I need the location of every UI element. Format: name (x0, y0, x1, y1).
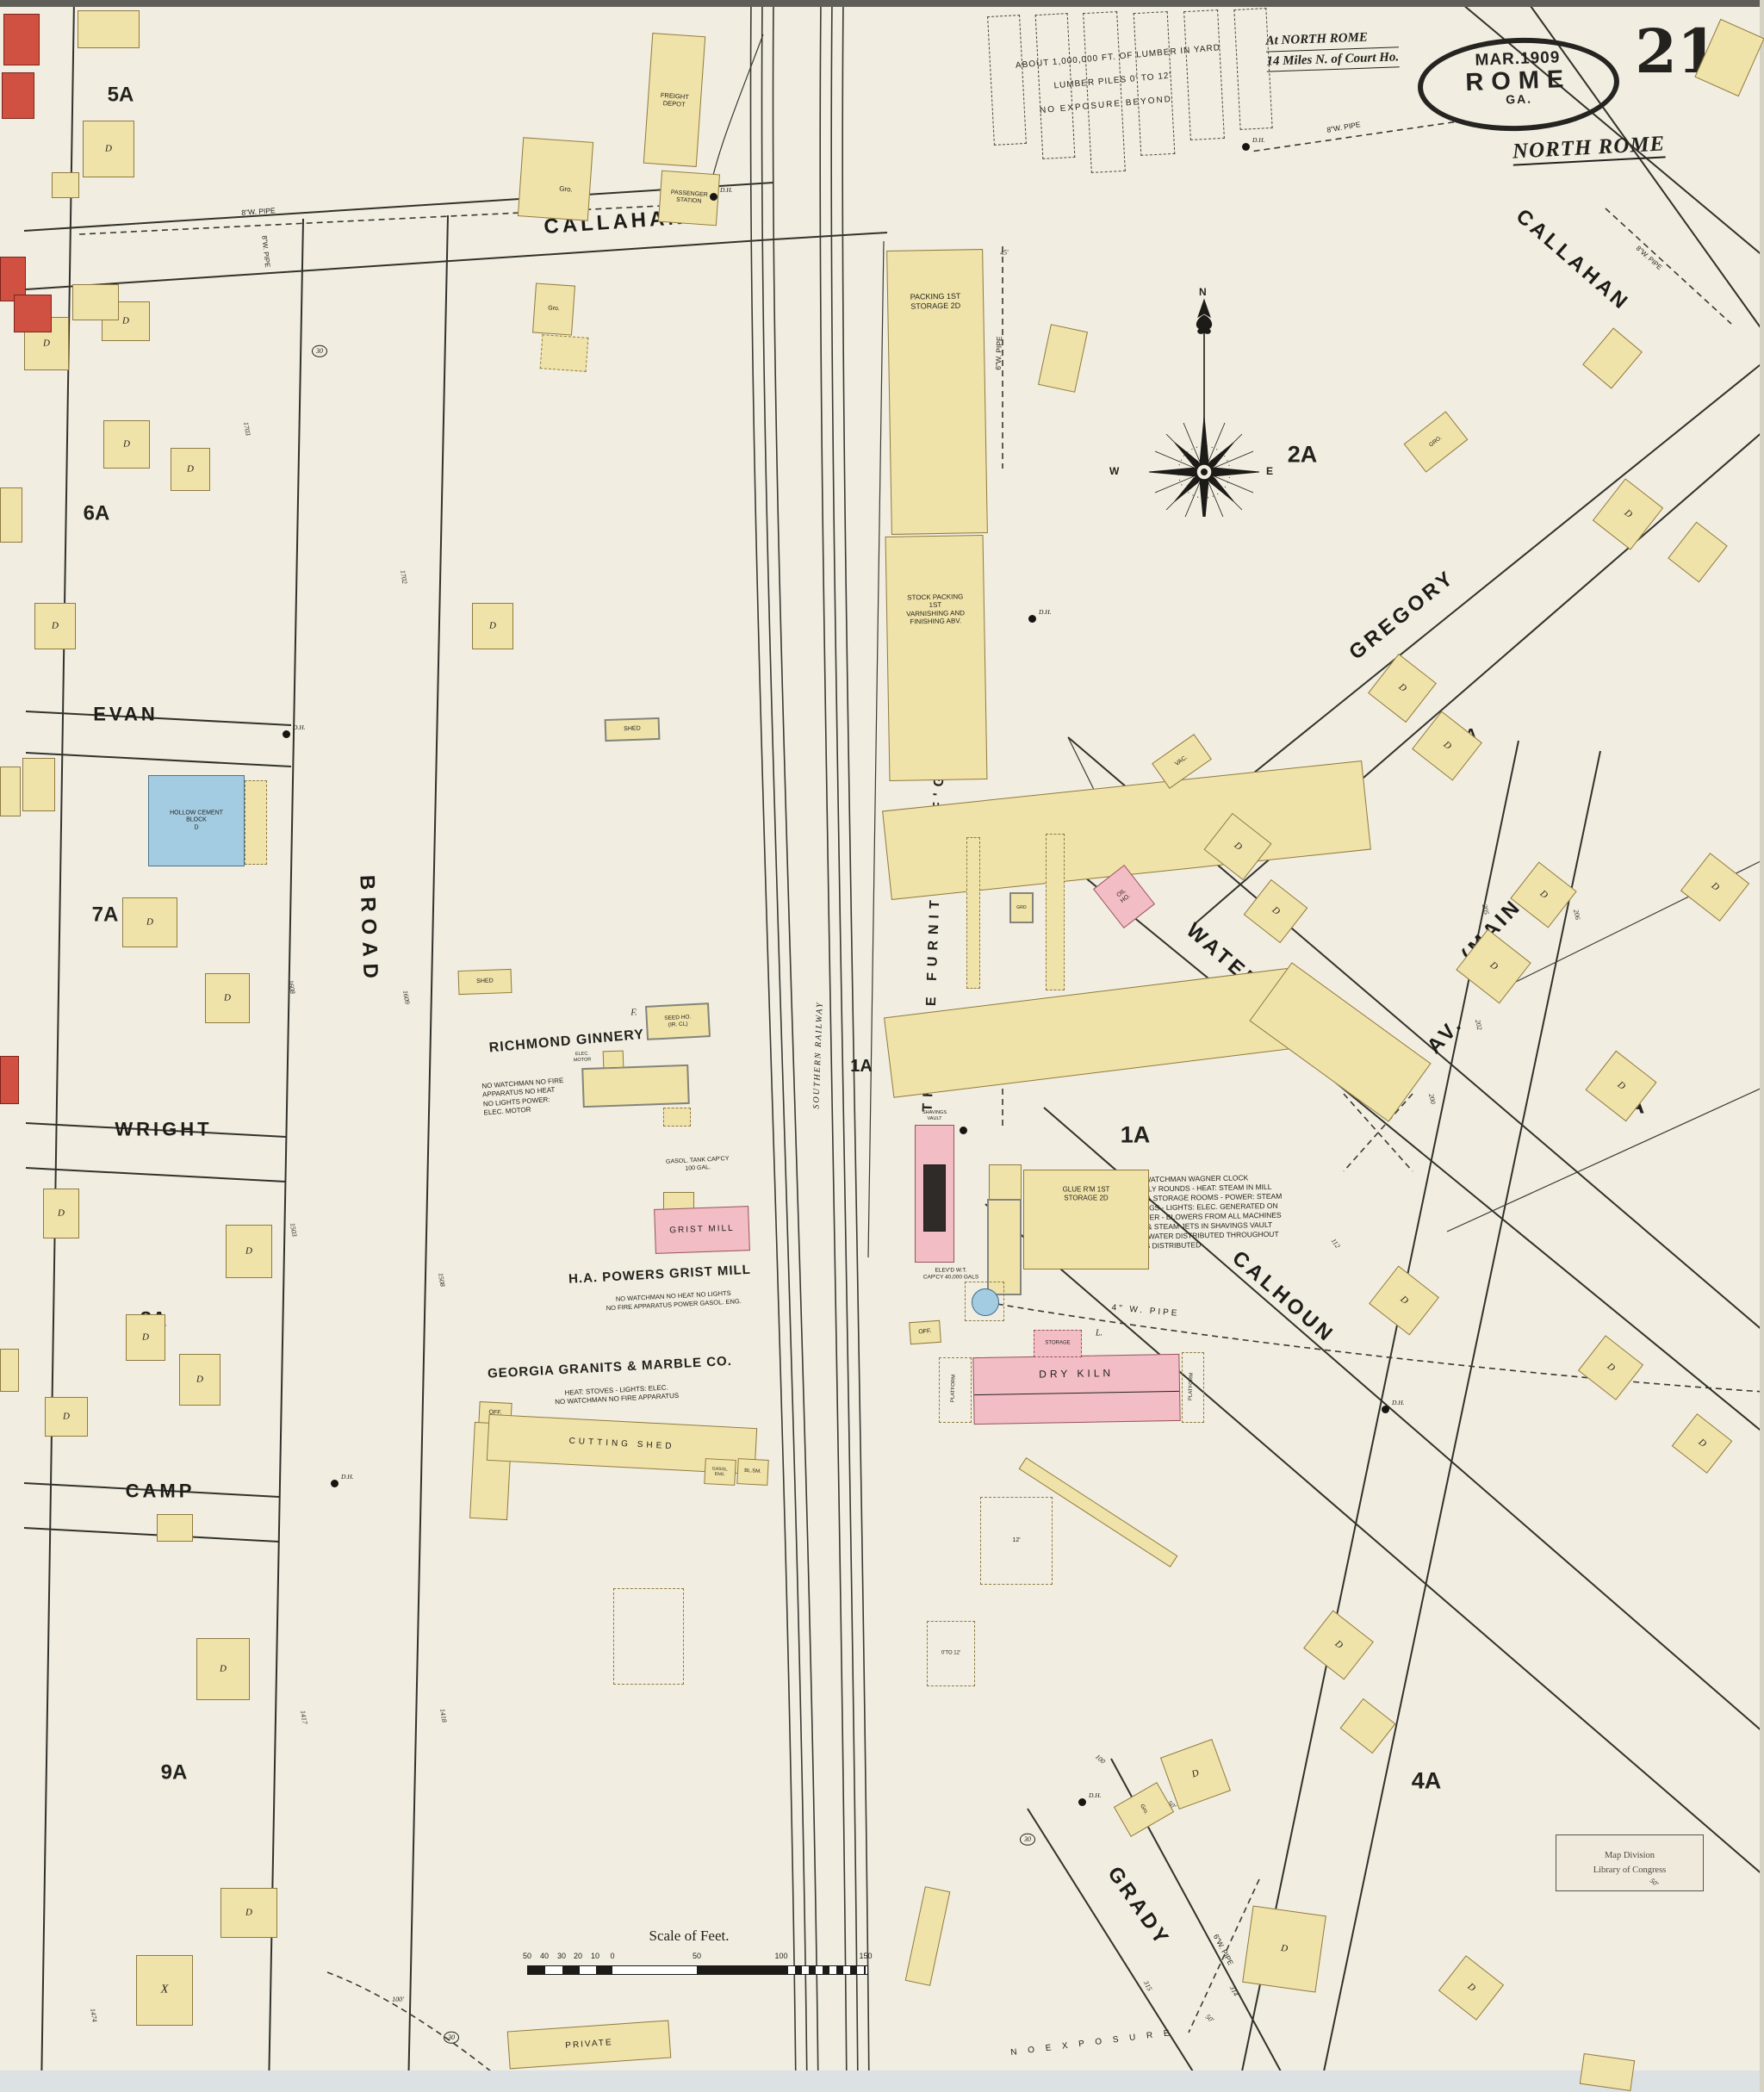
building (157, 1514, 193, 1542)
hydrant-label: D.H. (293, 723, 306, 731)
building-label: D (1709, 880, 1721, 893)
building-label: Gro. (1138, 1803, 1149, 1816)
hydrant-dot (331, 1480, 339, 1487)
annotation: L. (1096, 1328, 1102, 1339)
annotation: SHAVINGS VAULT (922, 1110, 947, 1122)
building-label: D (1332, 1638, 1345, 1651)
building-label: D (58, 1207, 65, 1219)
building (939, 1357, 972, 1423)
building-label: D (1396, 681, 1408, 694)
building (923, 1164, 946, 1232)
scale-tick: 20 (574, 1952, 582, 1962)
building-label: SHED (624, 725, 641, 733)
building-label: PRIVATE (565, 2038, 613, 2052)
hydrant-dot (1382, 1406, 1389, 1413)
building-label: D (123, 438, 130, 450)
building-label: D (1537, 888, 1550, 901)
building: D (126, 1314, 165, 1361)
building (0, 767, 21, 816)
lumber-pile (1233, 8, 1272, 130)
building-label: 0'TO 12' (941, 1650, 960, 1656)
building-label: GASOL. ENG. (711, 1467, 728, 1478)
building-label: STORAGE (1045, 1340, 1070, 1346)
library-stamp-line1: Map Division (1556, 1851, 1703, 1860)
compass-north-label: N (1199, 286, 1207, 298)
building-label: D (43, 338, 50, 349)
building: 0'TO 12' (927, 1621, 975, 1686)
building-label: D (224, 992, 231, 1003)
hydrant-label: D.H. (341, 1473, 354, 1481)
building: HOLLOW CEMENT BLOCK D (148, 775, 245, 866)
building: X (136, 1955, 193, 2026)
hydrant-label: D.H. (1089, 1791, 1102, 1799)
lumber-pile (987, 15, 1027, 146)
block-label: 4A (1412, 1766, 1442, 1796)
building-label: D (142, 1332, 149, 1343)
building-label: SEED HO. (IR. CL) (664, 1014, 692, 1028)
building: Gro. (532, 282, 575, 335)
building-label: Gro. (559, 184, 573, 194)
building-label: D (1232, 840, 1244, 853)
building: FREIGHT DEPOT (643, 33, 705, 167)
scale-tick: 50 (523, 1952, 531, 1962)
compass-east-label: E (1266, 465, 1273, 477)
hydrant-dot (1028, 615, 1036, 623)
annotation: NO WATCHMAN NO FIRE APPARATUS NO HEAT NO… (481, 1077, 566, 1118)
building: D (103, 420, 150, 469)
dimension-label: 200 (1426, 1093, 1438, 1105)
building-label: HOLLOW CEMENT BLOCK D (170, 810, 223, 831)
building: D (179, 1354, 220, 1406)
hydrant-dot (960, 1127, 967, 1134)
hydrant-dot (710, 193, 717, 201)
hydrant-label: D.H. (720, 186, 733, 194)
building-label: DRY KILN (1039, 1367, 1114, 1381)
building: D (45, 1397, 88, 1437)
building: D (1242, 1905, 1326, 1992)
building (0, 1056, 19, 1104)
annotation: ELEV'D W.T. CAP'CY 40,000 GALS (923, 1268, 978, 1282)
street-label: EVAN (93, 703, 158, 728)
scan-edge-right (1760, 0, 1764, 2092)
street-label: WRIGHT (115, 1118, 212, 1143)
building (603, 1051, 624, 1069)
building: GASOL. ENG. (704, 1458, 736, 1486)
building: D (34, 603, 76, 649)
building-label: D (1441, 739, 1453, 752)
building (22, 758, 55, 811)
building: D (220, 1888, 277, 1938)
building-label: PACKING 1ST STORAGE 2D (910, 292, 961, 312)
block-label: 1A (1121, 1120, 1151, 1150)
annotation: 6"W. PIPE (994, 336, 1004, 370)
building: OFF. (909, 1320, 941, 1344)
building-label: BL.SM. (744, 1468, 761, 1475)
building: BL.SM. (736, 1458, 769, 1486)
building (14, 295, 52, 332)
building-label: D (63, 1411, 70, 1422)
building (966, 837, 980, 989)
scale-tick: 0 (610, 1952, 614, 1962)
scale-bar-title: Scale of Feet. (603, 1927, 775, 1945)
building (2, 72, 34, 119)
building-label: D (52, 620, 59, 631)
building-label: OIL HO. (1115, 888, 1133, 906)
sanborn-map-sheet: N W E 21 MAR.1909 ROME GA. At NORTH ROME… (0, 0, 1764, 2092)
annotation: ELEC. MOTOR (574, 1052, 592, 1065)
building-label: SHED (476, 978, 494, 985)
building-label: 12' (1012, 1537, 1020, 1544)
building: D (171, 448, 210, 491)
building (1182, 1352, 1204, 1423)
compass-west-label: W (1109, 465, 1119, 477)
building: 12' (980, 1497, 1053, 1585)
library-stamp-line2: Library of Congress (1556, 1865, 1703, 1875)
scale-tick: 100 (774, 1952, 787, 1962)
building-label: STOCK PACKING 1ST VARNISHING AND FINISHI… (906, 593, 966, 627)
building-label: FREIGHT DEPOT (660, 91, 689, 109)
scale-bar (527, 1965, 868, 1975)
annotation: F. (630, 1008, 637, 1019)
compass-rose: N W E (1127, 293, 1282, 521)
building: D (196, 1638, 250, 1700)
building-label: GRO. (1428, 435, 1444, 449)
building-label: D (220, 1663, 227, 1674)
block-label: 1A (850, 1055, 873, 1077)
building-label: D (1190, 1767, 1201, 1780)
building-label: D (1622, 507, 1634, 520)
building-label: X (161, 1983, 169, 1998)
block-label: 5A (108, 81, 134, 108)
block-label: 9A (161, 1759, 188, 1785)
scale-tick: 10 (591, 1952, 599, 1962)
building: SHED (458, 969, 512, 995)
dimension-label: 206 (1571, 909, 1582, 921)
library-stamp: Map Division Library of Congress (1556, 1834, 1704, 1891)
building: GRO (1009, 892, 1034, 923)
water-tank (972, 1288, 999, 1316)
building: D (226, 1225, 272, 1278)
building: D (122, 897, 177, 947)
scale-tick: 40 (540, 1952, 549, 1962)
building-label: PASSENGER STATION (670, 189, 708, 207)
building: D (472, 603, 513, 649)
building: SHED (605, 717, 661, 742)
building-label: D (1488, 959, 1500, 972)
building-label: D (1605, 1361, 1617, 1374)
street-label: CAMP (126, 1480, 196, 1505)
building-label: VAC. (1174, 754, 1189, 768)
block-label: 6A (84, 500, 110, 526)
scale-tick: 150 (859, 1952, 872, 1962)
hydrant-label: D.H. (1252, 136, 1265, 144)
street-and-rail-lines (0, 0, 1764, 2092)
building: SEED HO. (IR. CL) (645, 1003, 711, 1040)
building (581, 1065, 690, 1108)
dimension-label: 205 (1480, 903, 1491, 916)
building (613, 1588, 684, 1685)
building-label: Gro. (548, 305, 560, 313)
block-label: 2A (1288, 439, 1318, 469)
annotation: GASOL. TANK CAP'CY 100 GAL. (666, 1155, 730, 1174)
building: DRY KILN (972, 1354, 1180, 1425)
dimension-label: 45' (1000, 248, 1009, 258)
building-label: GRO (1016, 905, 1026, 910)
building: D (43, 1189, 79, 1238)
building (0, 487, 22, 543)
street-label: BROAD (353, 874, 384, 985)
building: Gro. (518, 137, 593, 220)
building-label: D (122, 315, 129, 326)
building (663, 1108, 691, 1127)
building-label: D (1398, 1294, 1410, 1307)
hydrant-dot (283, 730, 290, 738)
hydrant-dot (1078, 1798, 1086, 1806)
building-label: D (489, 620, 496, 631)
building-label: GRIST MILL (669, 1224, 735, 1237)
dimension-label: 202 (1473, 1019, 1484, 1031)
building (1046, 834, 1065, 990)
scale-tick: 50 (693, 1952, 701, 1962)
building-label: GLUE R'M 1ST STORAGE 2D (1063, 1186, 1110, 1202)
building-label: D (1465, 1981, 1477, 1994)
building-label: D (1696, 1437, 1708, 1450)
scan-edge-top (0, 0, 1764, 7)
building-label: D (146, 916, 153, 928)
scale-tick: 30 (557, 1952, 566, 1962)
building (52, 172, 79, 198)
building (245, 780, 267, 865)
building (78, 10, 140, 48)
building-label: D (187, 463, 194, 475)
building (3, 14, 40, 65)
building-label: D (1615, 1079, 1627, 1092)
building-label: D (245, 1907, 252, 1918)
building-label: OFF. (918, 1328, 932, 1336)
building: D (205, 973, 250, 1023)
building (72, 284, 119, 320)
hydrant-label: D.H. (1392, 1399, 1405, 1406)
building: GLUE R'M 1ST STORAGE 2D (1023, 1170, 1149, 1269)
building (0, 1349, 19, 1392)
block-label: 7A (92, 901, 119, 928)
building-label: D (245, 1245, 252, 1257)
building-label: D (196, 1374, 203, 1385)
scan-edge-bottom (0, 2070, 1764, 2092)
building-label: D (105, 143, 112, 154)
dimension-label: 100' (392, 1996, 404, 2004)
building-label: CUTTING SHED (568, 1437, 674, 1452)
hydrant-label: D.H. (1039, 608, 1052, 616)
lumber-pile (1183, 9, 1225, 140)
building: STORAGE (1034, 1330, 1082, 1357)
building-label: D (1280, 1943, 1289, 1955)
building: STOCK PACKING 1ST VARNISHING AND FINISHI… (885, 535, 988, 781)
hydrant-dot (1242, 143, 1250, 151)
location-note: At NORTH ROME 14 Miles N. of Court Ho. (1265, 27, 1399, 71)
building-label: D (1270, 904, 1282, 917)
building: D (83, 121, 134, 177)
building: GRIST MILL (654, 1206, 750, 1254)
building: PACKING 1ST STORAGE 2D (886, 249, 988, 535)
building (540, 334, 589, 372)
